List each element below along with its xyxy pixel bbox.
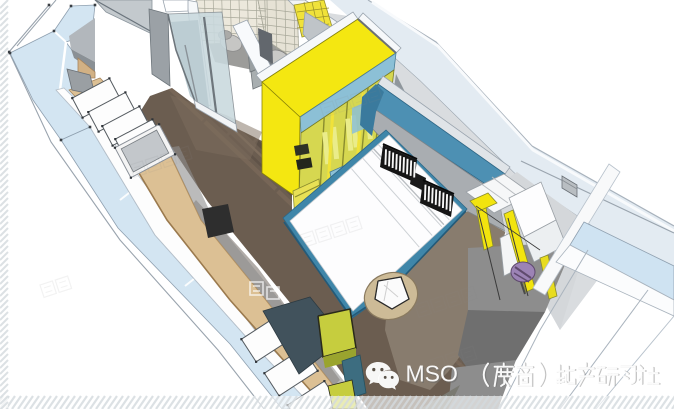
svg-text:MSO: MSO [406, 361, 458, 387]
